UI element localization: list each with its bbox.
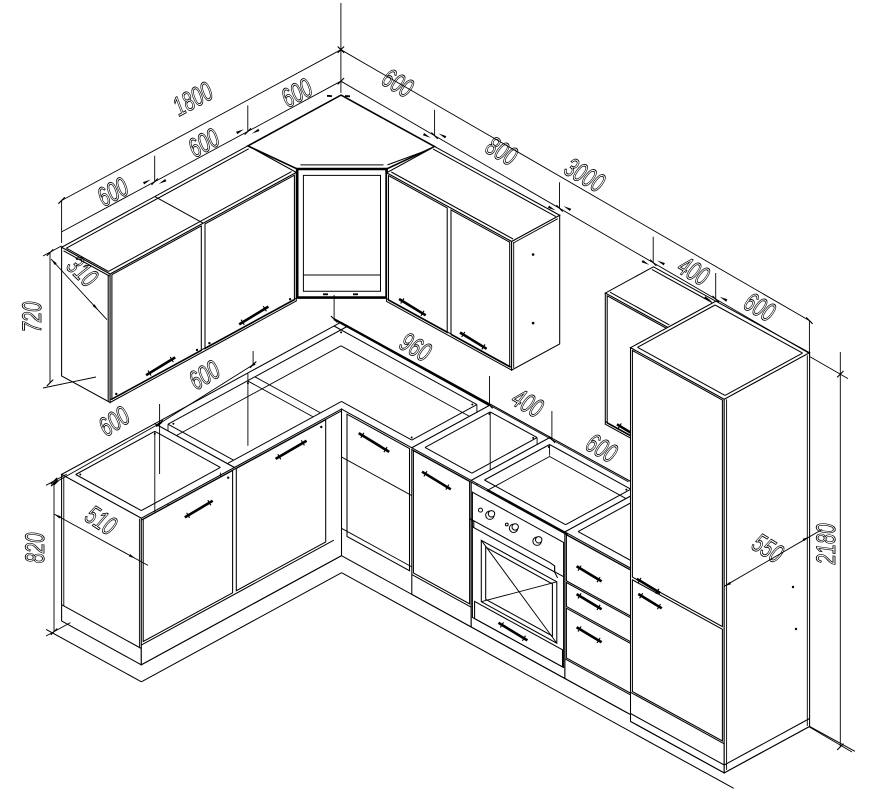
svg-text:2180: 2180 (811, 524, 841, 565)
svg-text:720: 720 (17, 302, 47, 333)
svg-text:820: 820 (20, 533, 50, 564)
